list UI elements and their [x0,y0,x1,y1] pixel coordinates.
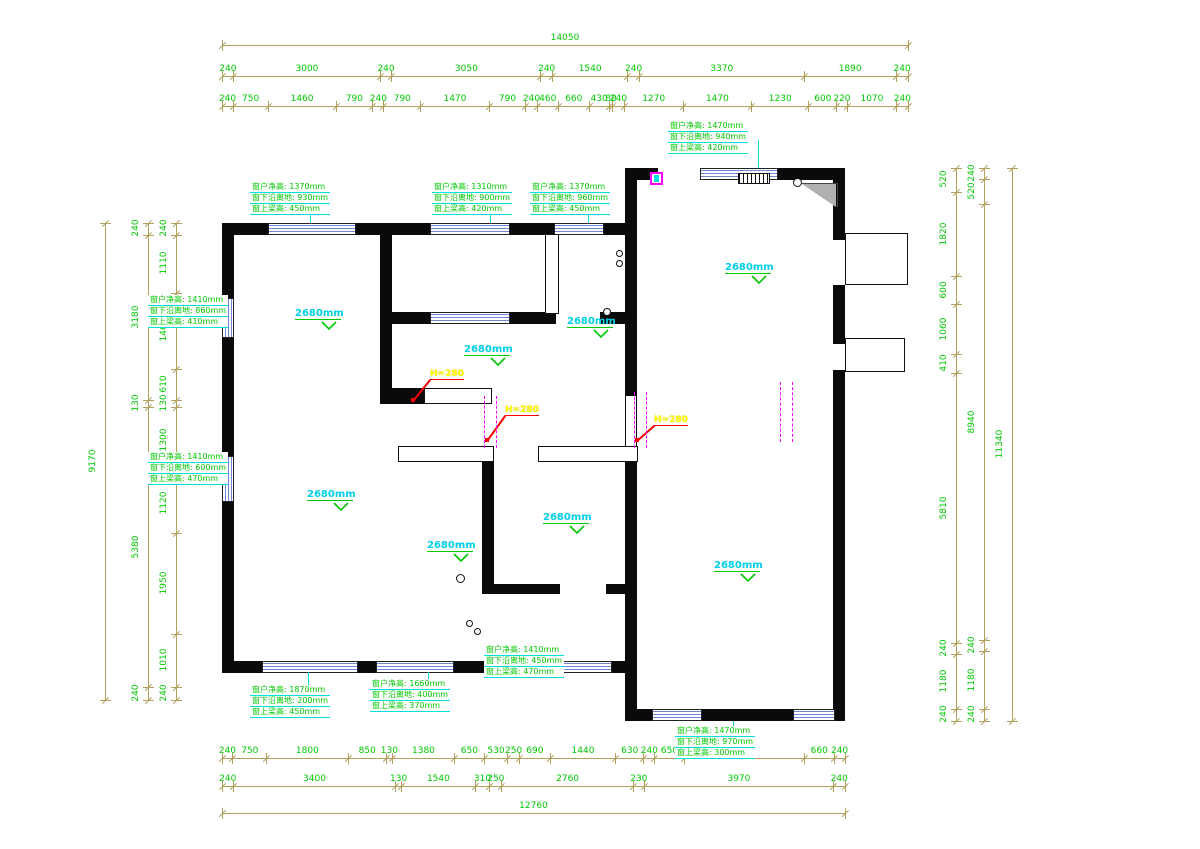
dim-label: 520 [939,149,949,209]
window-spec-line: 窗户净高: 1410mm [148,452,228,463]
fixture-circle-icon [603,308,611,316]
elevation-mark-icon [453,553,469,562]
window-spec-line: 窗下沿离地: 200mm [250,696,330,707]
window-spec-block: 窗户净高: 1370mm窗下沿离地: 960mm窗上梁高: 450mm [530,182,610,215]
window-spec-block: 窗户净高: 1410mm窗下沿离地: 860mm窗上梁高: 410mm [148,295,228,328]
elevation-mark-icon [333,502,349,511]
window-spec-line: 窗户净高: 1410mm [148,295,228,306]
door-opening [833,344,845,370]
window-spec-block: 窗户净高: 1470mm窗下沿离地: 970mm窗上梁高: 300mm [675,726,755,759]
dim-label: 11340 [995,414,1005,474]
window-spec-line: 窗上梁高: 450mm [250,707,330,718]
spec-leader-line [758,140,759,168]
dim-label: 1110 [159,233,169,293]
dim-label: 240 [599,64,669,74]
fixture-circle-icon [616,250,623,257]
window-spec-line: 窗户净高: 1310mm [432,182,512,193]
dim-label: 240 [804,774,874,784]
step-leader-dot [411,398,415,402]
dim-line-left-total [105,223,106,700]
window-spec-line: 窗下沿离地: 600mm [148,463,228,474]
window-spec-line: 窗上梁高: 450mm [530,204,610,215]
vent-grille-icon [738,173,770,184]
dim-label: 130 [131,373,141,433]
spec-leader-line [308,672,309,685]
ceiling-height-label: 2680mm [567,316,613,328]
dim-label: 240 [867,64,937,74]
dim-label: 14050 [530,33,600,43]
dim-line-bottom-total [222,813,845,814]
window [430,312,510,324]
dim-label: 2760 [533,774,603,784]
dim-label: 240 [939,684,949,744]
dim-line-top-minor [222,106,908,107]
wall [222,223,234,673]
ceiling-height-label: 2680mm [464,344,510,356]
window [560,661,612,673]
window-spec-line: 窗上梁高: 370mm [370,701,450,712]
window-spec-block: 窗户净高: 1410mm窗下沿离地: 600mm窗上梁高: 470mm [148,452,228,485]
door-opening [658,168,700,180]
elevation-mark-icon [593,329,609,338]
window [262,661,358,673]
dim-label: 520 [967,161,977,221]
beam-outline [538,446,638,462]
window-spec-block: 窗户净高: 1410mm窗下沿离地: 450mm窗上梁高: 470mm [484,645,564,678]
dim-label: 1270 [619,94,689,104]
window-spec-block: 窗户净高: 1470mm窗下沿离地: 940mm窗上梁高: 420mm [668,121,748,154]
window-spec-line: 窗户净高: 1410mm [484,645,564,656]
dim-label: 5810 [939,478,949,538]
door-opening-dash [646,392,647,448]
dim-label: 230 [604,774,674,784]
window-spec-line: 窗上梁高: 300mm [675,748,755,759]
dim-label: 8940 [967,392,977,452]
fixture-circle-icon [456,574,465,583]
fixture-circle-icon [616,260,623,267]
dim-label: 240 [193,64,263,74]
beam-outline [398,446,494,462]
dim-label: 9170 [88,431,98,491]
dim-label: 240 [131,663,141,723]
window-spec-line: 窗下沿离地: 900mm [432,193,512,204]
dim-label: 410 [939,333,949,393]
step-leader-dot [635,438,639,442]
dim-label: 240 [805,746,875,756]
door-opening-dash [792,382,793,442]
window [376,661,454,673]
wall [482,584,630,594]
spec-leader-line [428,672,429,679]
dim-label: 240 [193,774,263,784]
window-spec-block: 窗户净高: 1870mm窗下沿离地: 200mm窗上梁高: 450mm [250,685,330,718]
dim-label: 240 [867,94,937,104]
window [554,223,604,235]
window-spec-line: 窗上梁高: 420mm [432,204,512,215]
window-spec-line: 窗下沿离地: 400mm [370,690,450,701]
dim-label: 240 [131,198,141,258]
beam-outline [424,388,492,404]
window-spec-line: 窗户净高: 1470mm [675,726,755,737]
beam-outline [545,234,559,314]
window-spec-line: 窗户净高: 1870mm [250,685,330,696]
dim-label: 240 [351,64,421,74]
window-spec-line: 窗下沿离地: 970mm [675,737,755,748]
door-opening-dash [634,392,635,448]
dim-label: 12760 [499,801,569,811]
window-spec-line: 窗户净高: 1660mm [370,679,450,690]
window-spec-line: 窗户净高: 1370mm [250,182,330,193]
window-spec-line: 窗上梁高: 470mm [148,474,228,485]
dim-label: 3180 [131,287,141,347]
dim-line-top-total [222,45,908,46]
wall [380,234,392,400]
dim-line-bottom-major [222,786,845,787]
window-spec-block: 窗户净高: 1660mm窗下沿离地: 400mm窗上梁高: 370mm [370,679,450,712]
window [793,709,835,721]
fixture-circle-icon [793,178,802,187]
window-spec-line: 窗下沿离地: 450mm [484,656,564,667]
step-leader-dot [485,438,489,442]
window-spec-line: 窗下沿离地: 940mm [668,132,748,143]
dim-label: 3970 [704,774,774,784]
dim-label: 1950 [159,553,169,613]
ceiling-height-label: 2680mm [307,489,353,501]
dim-label: 240 [967,684,977,744]
window-spec-line: 窗户净高: 1470mm [668,121,748,132]
dim-label: 240 [159,663,169,723]
door-opening-dash [780,382,781,442]
window [268,223,356,235]
step-height-label: H=280 [430,369,464,380]
elevation-mark-icon [569,525,585,534]
window-spec-line: 窗上梁高: 450mm [250,204,330,215]
beam-outline [845,233,908,285]
fixture-circle-icon [474,628,481,635]
ceiling-height-label: 2680mm [714,560,760,572]
window-spec-line: 窗下沿离地: 960mm [530,193,610,204]
window-spec-line: 窗上梁高: 410mm [148,317,228,328]
step-height-label: H=280 [505,405,539,416]
elevation-mark-icon [751,275,767,284]
window [652,709,702,721]
dim-label: 1820 [939,204,949,264]
dim-label: 5380 [131,517,141,577]
window [430,223,510,235]
door-opening [833,240,845,285]
corner-shower-icon [802,183,838,207]
window-spec-line: 窗上梁高: 420mm [668,143,748,154]
door-opening [560,584,606,594]
dim-line-right-minor [956,168,957,721]
dim-label: 250 [461,774,531,784]
door-opening-dash [484,396,485,448]
window-spec-line: 窗下沿离地: 930mm [250,193,330,204]
window-spec-line: 窗下沿离地: 860mm [148,306,228,317]
elevation-mark-icon [740,573,756,582]
window-spec-line: 窗上梁高: 470mm [484,667,564,678]
ceiling-height-label: 2680mm [725,262,771,274]
step-height-label: H=280 [654,415,688,426]
beam-outline [845,338,905,372]
ceiling-height-label: 2680mm [295,308,341,320]
elevation-mark-icon [321,321,337,330]
dim-label: 3000 [272,64,342,74]
ceiling-height-label: 2680mm [543,512,589,524]
dim-label: 3050 [431,64,501,74]
door-opening-dash [496,396,497,448]
ceiling-height-label: 2680mm [427,540,473,552]
dim-line-right-total [1012,168,1013,721]
window-spec-block: 窗户净高: 1310mm窗下沿离地: 900mm窗上梁高: 420mm [432,182,512,215]
dim-label: 3370 [687,64,757,74]
window-spec-block: 窗户净高: 1370mm窗下沿离地: 930mm窗上梁高: 450mm [250,182,330,215]
fixture-circle-icon [466,620,473,627]
floorplan-canvas: 1405024030002403050240154024033701890240… [0,0,1200,849]
window-spec-line: 窗户净高: 1370mm [530,182,610,193]
socket-symbol-icon [650,172,663,185]
elevation-mark-icon [490,357,506,366]
dim-label: 3400 [279,774,349,784]
wall [482,448,494,594]
dim-label: 1470 [682,94,752,104]
